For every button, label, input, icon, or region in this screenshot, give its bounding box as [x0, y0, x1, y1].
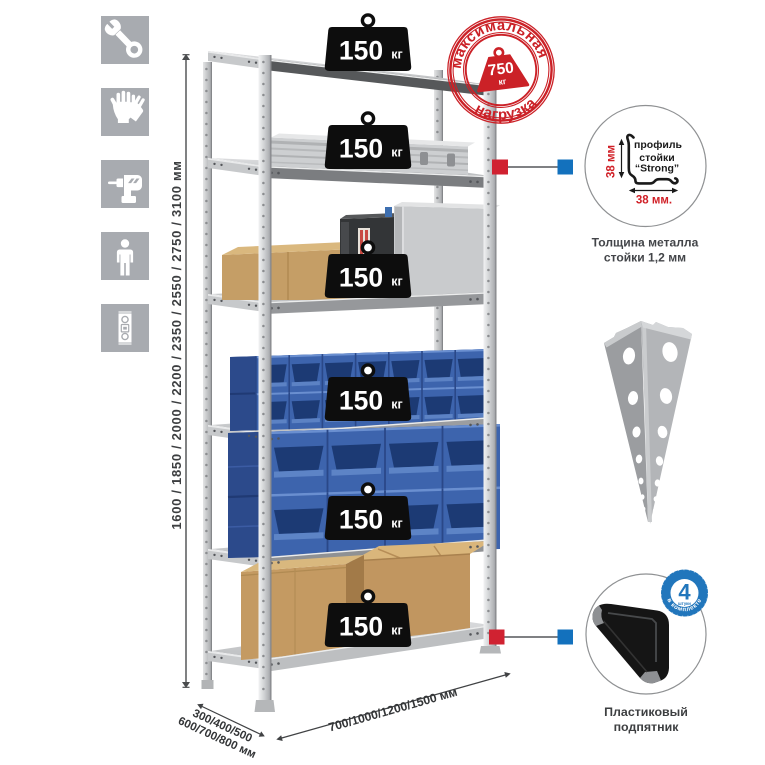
- svg-text:38 мм: 38 мм: [606, 145, 618, 178]
- svg-text:кг: кг: [391, 48, 402, 62]
- svg-text:150: 150: [339, 505, 383, 535]
- svg-text:кг: кг: [391, 517, 402, 531]
- svg-text:150: 150: [339, 612, 383, 642]
- svg-text:кг: кг: [391, 275, 402, 289]
- svg-text:150: 150: [339, 386, 383, 416]
- svg-text:стойки 1,2 мм: стойки 1,2 мм: [604, 251, 686, 265]
- svg-text:38 мм.: 38 мм.: [636, 195, 672, 207]
- svg-text:1600 / 1850 / 2000 / 2200 / 23: 1600 / 1850 / 2000 / 2200 / 2350 / 2550 …: [169, 160, 184, 529]
- svg-text:700/1000/1200/1500 мм: 700/1000/1200/1500 мм: [327, 685, 459, 735]
- svg-text:150: 150: [339, 263, 383, 293]
- svg-text:“Strong”: “Strong”: [635, 163, 679, 175]
- svg-text:Толщина металла: Толщина металла: [592, 236, 699, 250]
- svg-text:кг: кг: [391, 624, 402, 638]
- svg-text:кг: кг: [391, 146, 402, 160]
- svg-text:подпятник: подпятник: [614, 720, 680, 734]
- svg-text:кг: кг: [391, 398, 402, 412]
- svg-text:штуки: штуки: [678, 601, 691, 606]
- svg-text:Пластиковый: Пластиковый: [604, 705, 688, 719]
- svg-text:150: 150: [339, 36, 383, 66]
- svg-text:150: 150: [339, 134, 383, 164]
- svg-text:профиль: профиль: [634, 139, 682, 151]
